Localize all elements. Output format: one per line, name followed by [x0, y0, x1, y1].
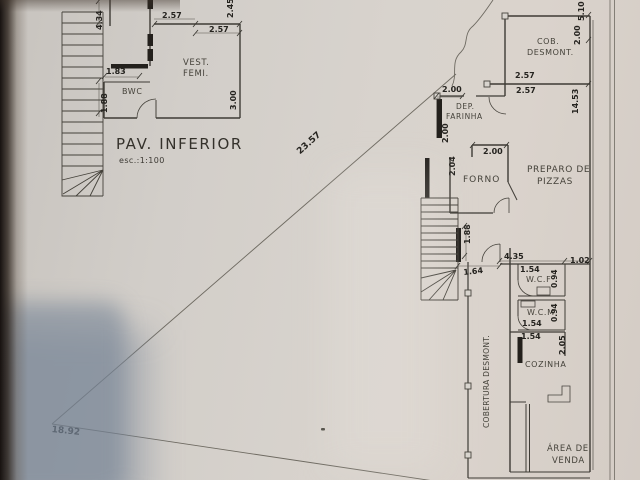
dim-label-14-53: 14.53 [572, 89, 580, 114]
paper-speck [321, 428, 325, 431]
dim-label-1-88-stairs: 1.88 [464, 224, 472, 244]
plan-terreo-wall-fills [425, 99, 523, 363]
room-label-cob-2: DESMONT. [527, 49, 574, 57]
dim-label-1-54-wcm: 1.54 [522, 320, 542, 328]
dim-label-2-57-b: 2.57 [516, 87, 536, 95]
room-label-cozinha: COZINHA [525, 361, 566, 369]
room-label-forno: FORNO [463, 176, 500, 185]
dim-label-2-45: 2.45 [227, 0, 235, 18]
dim-label-4-35: 4.35 [504, 253, 524, 261]
room-label-cobertura-desmont: COBERTURA DESMONT. [483, 335, 491, 428]
dim-label-1-88-bwc: 1.88 [101, 93, 109, 113]
dim-label-2-57-top: 2.57 [162, 12, 182, 20]
dim-label-1-02: 1.02 [570, 257, 590, 265]
room-label-venda-1: ÁREA DE [547, 445, 589, 454]
dim-label-2-00-farinha-left: 2.00 [442, 123, 450, 143]
dim-label-1-83: 1.83 [106, 68, 126, 76]
room-label-farinha-2: FARINHA [446, 113, 483, 121]
room-label-cob-1: COB. [537, 38, 559, 46]
floorplan-drawing [0, 0, 640, 480]
dim-label-2-57-vest: 2.57 [209, 26, 229, 34]
plan-inferior-door [137, 99, 156, 118]
plan-scale: esc.:1:100 [119, 157, 165, 165]
dim-label-0-94-wcf: 0.94 [551, 269, 559, 288]
dimension-lines [99, 2, 589, 266]
room-label-vest-1: VEST. [183, 59, 209, 68]
dim-label-5-10: 5.10 [578, 1, 586, 21]
dim-label-2-57-a: 2.57 [515, 72, 535, 80]
room-label-preparo-1: PREPARO DE [527, 166, 590, 175]
dim-label-1-54-cozinha: 1.54 [521, 333, 541, 341]
dim-label-2-00-farinha-top: 2.00 [442, 86, 462, 94]
dim-label-2-00-forno: 2.00 [483, 148, 503, 156]
plan-inferior-wall-fills [111, 0, 153, 69]
dim-label-2-05: 2.05 [559, 335, 567, 355]
dim-label-2-04: 2.04 [449, 156, 457, 176]
dim-label-4-34: 4.34 [96, 10, 104, 30]
floorplan-photo: 4.34 2.57 2.57 2.45 1.83 1.88 3.00 BWC V… [0, 0, 640, 480]
dim-label-0-94-wcm: 0.94 [551, 303, 559, 322]
stairs-lower-plan [62, 12, 103, 196]
room-label-bwc: BWC [122, 88, 143, 96]
room-label-wcf: W.C.F [526, 276, 551, 284]
room-label-farinha-1: DEP. [456, 103, 475, 111]
dim-label-1-54-wcf: 1.54 [520, 266, 540, 274]
room-label-preparo-2: PIZZAS [537, 178, 573, 187]
room-label-venda-2: VENDA [552, 457, 585, 466]
dim-label-2-00-cob: 2.00 [574, 25, 582, 45]
dim-label-3-00: 3.00 [230, 90, 238, 110]
room-label-vest-2: FEMI. [183, 70, 209, 79]
plan-title: PAV. INFERIOR [116, 137, 243, 152]
